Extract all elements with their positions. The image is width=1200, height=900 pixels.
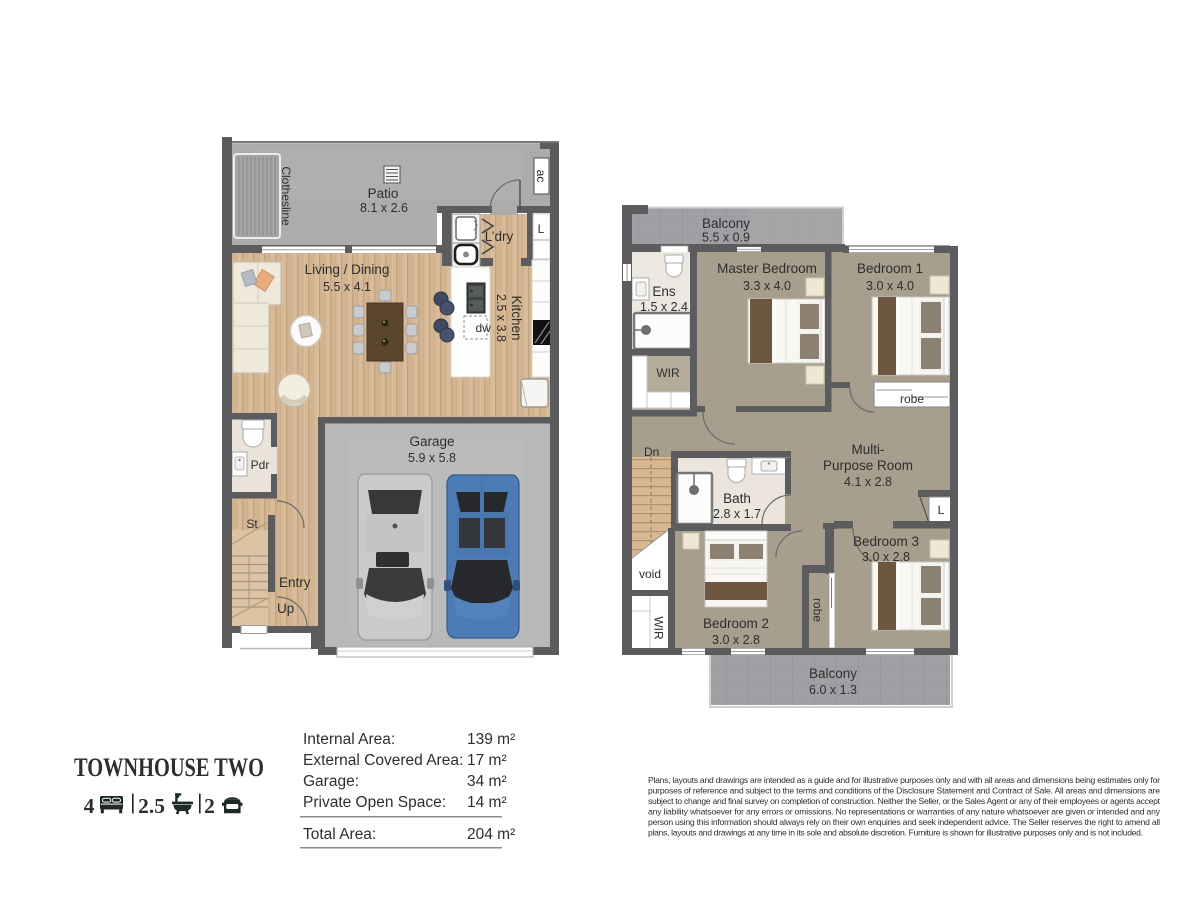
svg-text:Bedroom 1: Bedroom 1 [857,261,923,276]
svg-text:Multi-: Multi- [852,442,885,457]
svg-text:dw: dw [476,321,492,335]
svg-text:2.5 x 3.8: 2.5 x 3.8 [494,294,508,342]
svg-text:L: L [938,503,945,517]
svg-text:5.9 x 5.8: 5.9 x 5.8 [408,451,456,465]
svg-text:Total Area:: Total Area: [303,826,376,843]
svg-text:purposes of reference and subj: purposes of reference and subject to the… [648,786,1160,796]
svg-text:34 m²: 34 m² [467,773,507,790]
svg-text:2.5: 2.5 [138,794,165,818]
svg-text:WIR: WIR [652,616,666,640]
svg-text:3.0 x 4.0: 3.0 x 4.0 [866,279,914,293]
svg-text:8.1 x 2.6: 8.1 x 2.6 [360,201,408,215]
svg-text:Garage: Garage [409,434,454,449]
svg-text:Balcony: Balcony [809,666,857,681]
svg-text:Balcony: Balcony [702,216,750,231]
svg-text:L’dry: L’dry [485,229,514,244]
svg-text:TOWNHOUSE TWO: TOWNHOUSE TWO [74,752,264,782]
svg-text:14 m²: 14 m² [467,794,507,811]
svg-text:2: 2 [204,794,215,818]
svg-text:4.1 x 2.8: 4.1 x 2.8 [844,475,892,489]
svg-text:5.5 x 4.1: 5.5 x 4.1 [323,280,371,294]
svg-text:plans, layouts and drawings at: plans, layouts and drawings at any time … [648,828,1143,838]
svg-text:robe: robe [900,392,924,406]
svg-text:subject to change and final su: subject to change and final survey on co… [648,796,1161,806]
svg-text:17 m²: 17 m² [467,752,507,769]
svg-text:Purpose Room: Purpose Room [823,458,913,473]
svg-text:WIR: WIR [656,366,680,380]
svg-text:Kitchen: Kitchen [509,295,524,340]
svg-text:204 m²: 204 m² [467,826,515,843]
svg-text:External Covered Area:: External Covered Area: [303,752,463,769]
svg-text:139 m²: 139 m² [467,731,515,748]
svg-text:ac: ac [534,170,548,183]
svg-text:Internal Area:: Internal Area: [303,731,395,748]
svg-text:4: 4 [84,794,95,818]
svg-text:3.0 x 2.8: 3.0 x 2.8 [712,633,760,647]
svg-text:5.5 x 0.9: 5.5 x 0.9 [702,231,750,245]
svg-text:Bath: Bath [723,491,751,506]
svg-text:void: void [639,567,661,581]
svg-text:Plans, layouts and drawings ar: Plans, layouts and drawings are intended… [648,775,1160,785]
svg-text:robe: robe [811,598,825,622]
svg-text:6.0 x 1.3: 6.0 x 1.3 [809,683,857,697]
svg-text:Pdr: Pdr [251,458,270,472]
svg-text:Private Open Space:: Private Open Space: [303,794,446,811]
svg-text:3.3 x 4.0: 3.3 x 4.0 [743,279,791,293]
svg-text:Bedroom 3: Bedroom 3 [853,534,919,549]
svg-text:Clothesline: Clothesline [279,166,293,226]
svg-text:Living / Dining: Living / Dining [305,262,390,277]
svg-text:Dn: Dn [644,445,659,459]
svg-text:Patio: Patio [368,186,399,201]
svg-text:Bedroom 2: Bedroom 2 [703,616,769,631]
svg-text:L: L [538,222,545,236]
svg-text:person using this information: person using this information should alw… [648,817,1160,827]
svg-text:Entry: Entry [279,575,311,590]
svg-text:2.8 x 1.7: 2.8 x 1.7 [713,507,761,521]
svg-text:any liability whatsoever for a: any liability whatsoever for any errors … [648,807,1161,817]
svg-text:Master Bedroom: Master Bedroom [717,261,817,276]
svg-text:Up: Up [277,601,294,616]
svg-text:Garage:: Garage: [303,773,359,790]
svg-text:Ens: Ens [652,284,676,299]
